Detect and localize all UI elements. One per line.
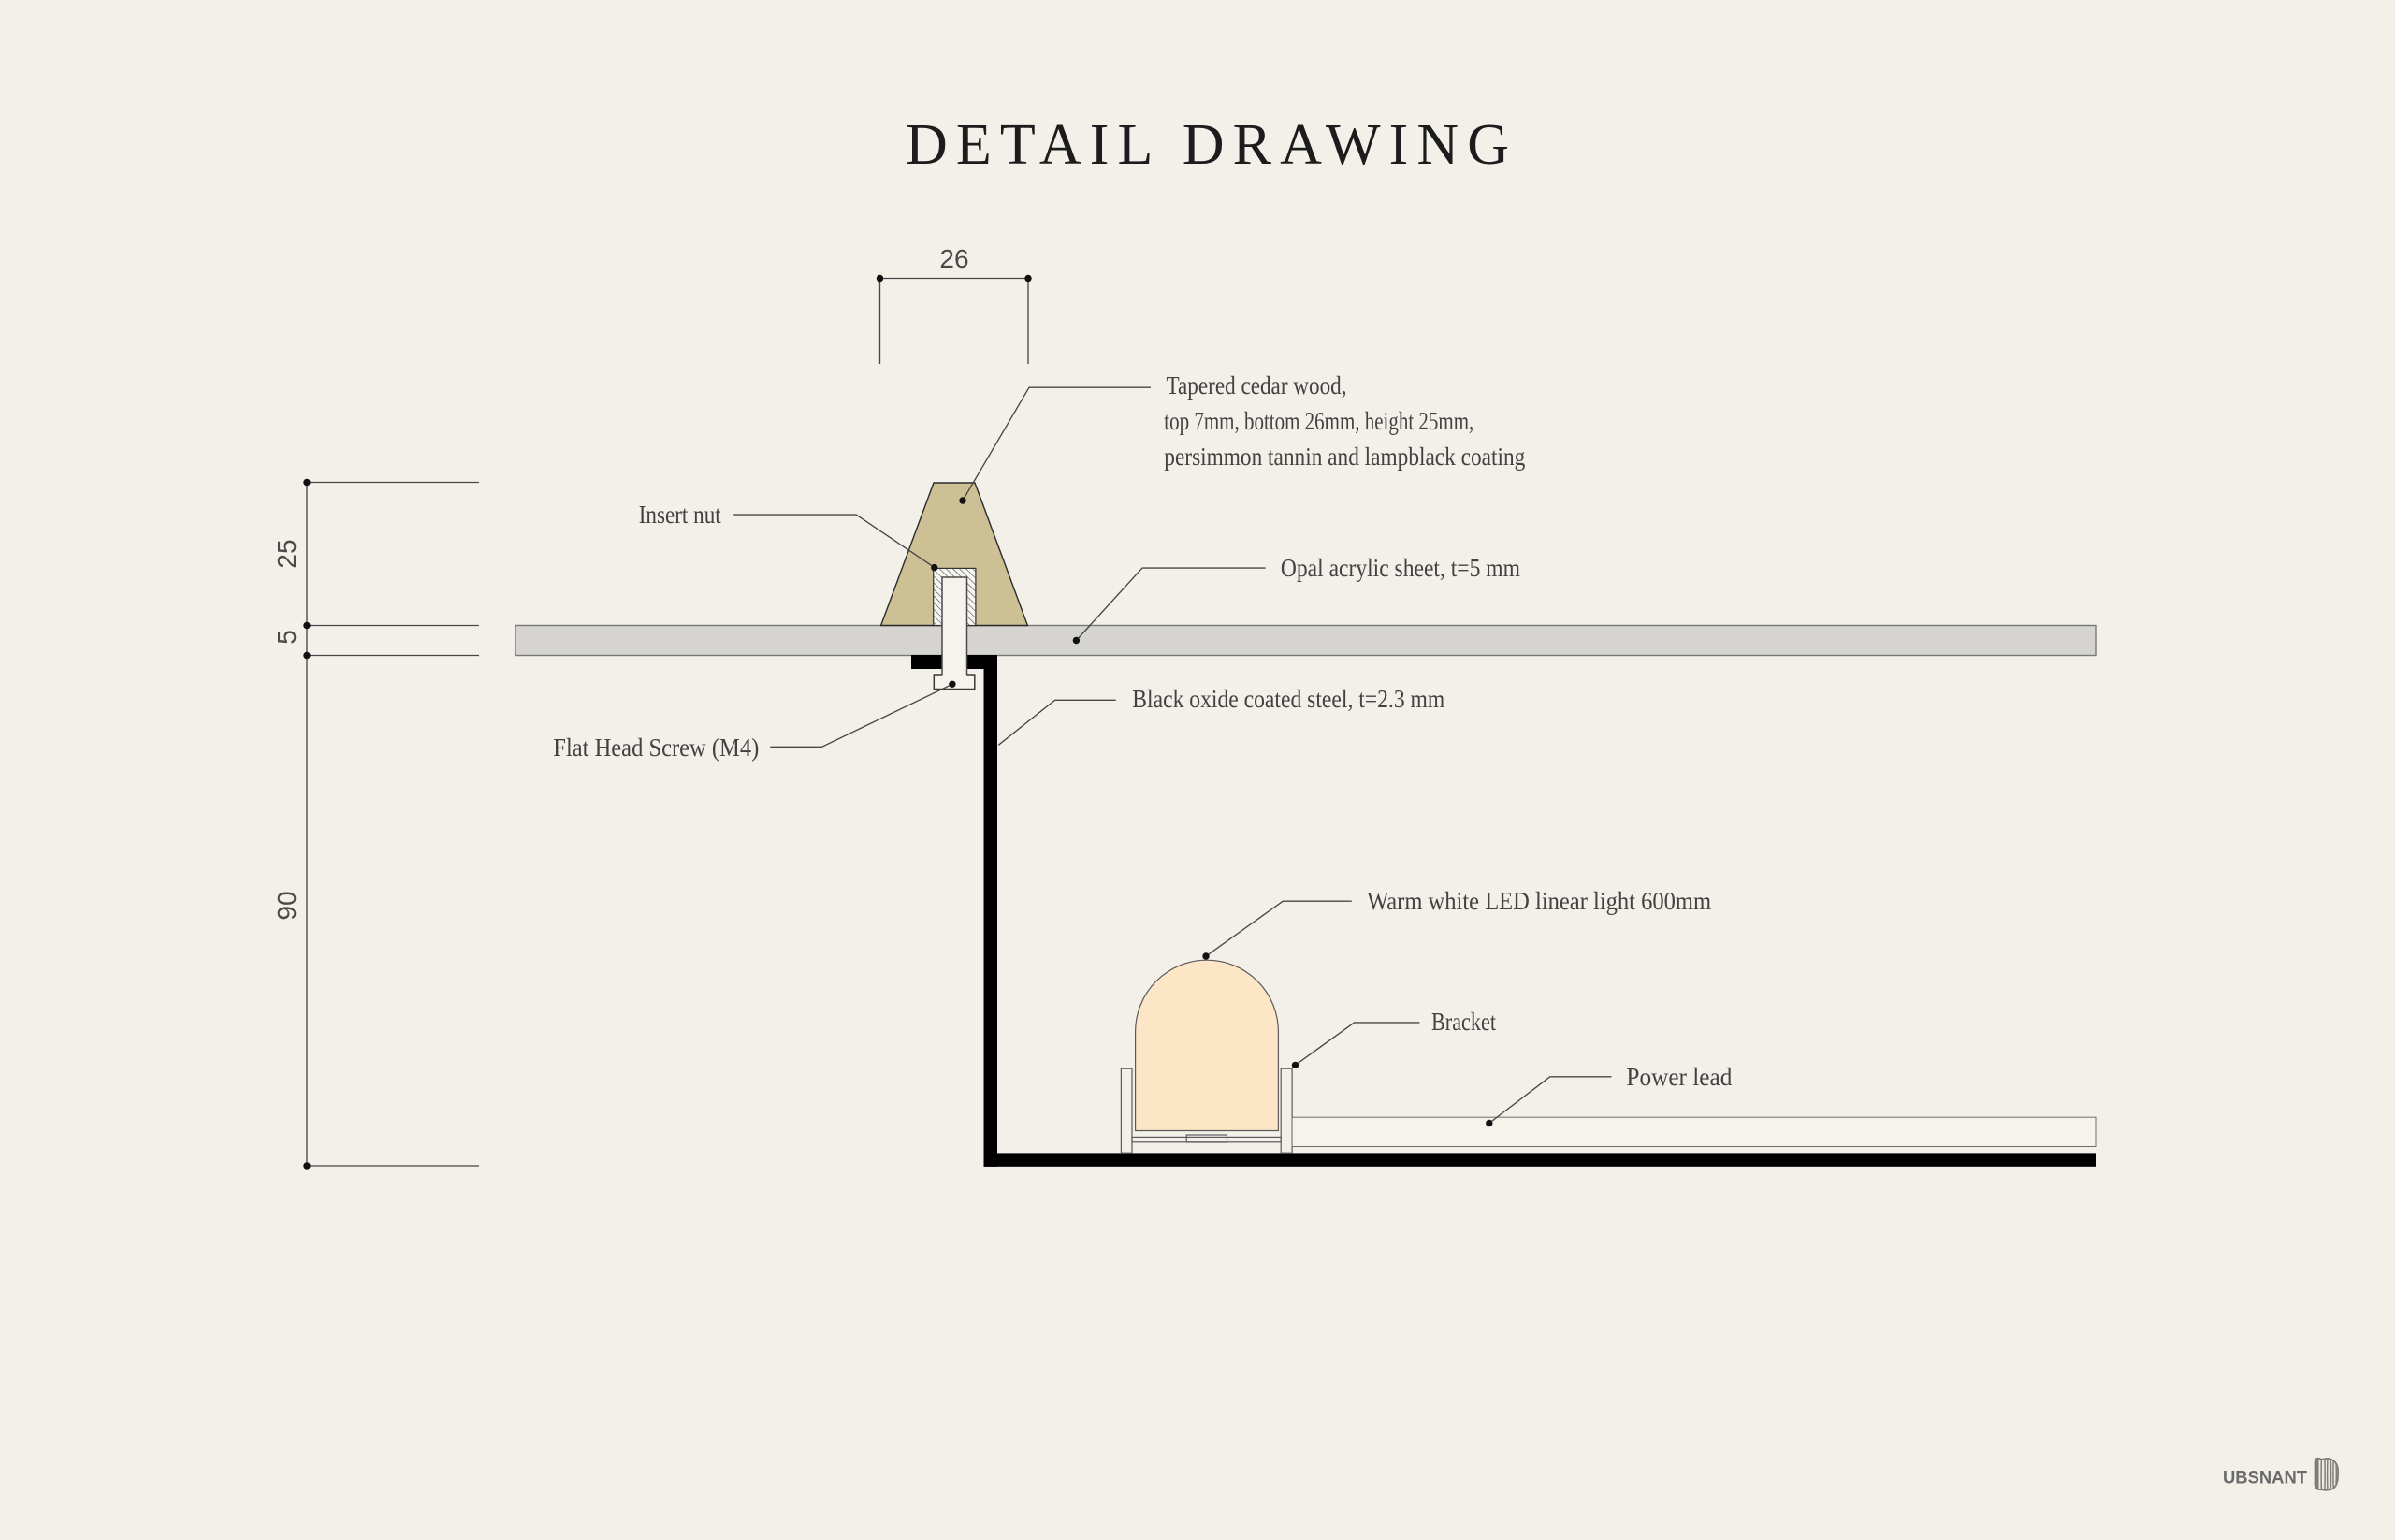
svg-text:top 7mm, bottom 26mm, height 2: top 7mm, bottom 26mm, height 25mm,	[1164, 407, 1473, 435]
svg-text:Warm white LED linear light 60: Warm white LED linear light 600mm	[1367, 887, 1711, 915]
svg-text:Power lead: Power lead	[1626, 1063, 1732, 1091]
svg-text:DETAIL DRAWING: DETAIL DRAWING	[906, 113, 1517, 177]
svg-text:90: 90	[272, 891, 301, 920]
svg-text:25: 25	[272, 539, 301, 568]
svg-text:Flat Head Screw (M4): Flat Head Screw (M4)	[553, 734, 759, 762]
svg-text:Bracket: Bracket	[1431, 1008, 1496, 1036]
svg-text:26: 26	[939, 244, 968, 273]
svg-text:Black oxide coated steel, t=2.: Black oxide coated steel, t=2.3 mm	[1132, 685, 1444, 713]
svg-text:UBSNANT: UBSNANT	[2223, 1469, 2307, 1489]
svg-text:5: 5	[272, 630, 301, 645]
svg-text:persimmon tannin and lampblack: persimmon tannin and lampblack coating	[1164, 443, 1525, 471]
svg-text:Opal acrylic sheet, t=5 mm: Opal acrylic sheet, t=5 mm	[1281, 554, 1520, 582]
svg-text:Insert nut: Insert nut	[639, 501, 721, 529]
svg-text:Tapered cedar wood,: Tapered cedar wood,	[1167, 371, 1347, 400]
